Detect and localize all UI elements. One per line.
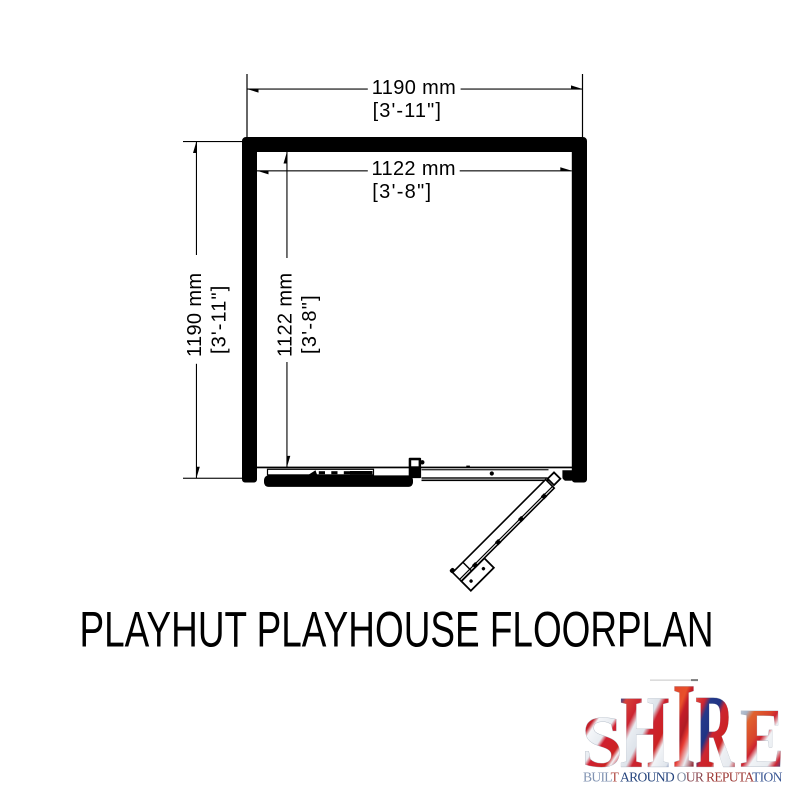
svg-text:[3'-11"]: [3'-11"] [209, 285, 231, 354]
svg-text:[3'-11"]: [3'-11"] [373, 100, 442, 122]
svg-text:1190 mm: 1190 mm [184, 273, 206, 357]
svg-text:[3'-8"]: [3'-8"] [299, 294, 321, 354]
svg-text:1122 mm: 1122 mm [275, 273, 297, 357]
svg-text:BUILT AROUND OUR REPUTATION: BUILT AROUND OUR REPUTATION [583, 769, 783, 784]
svg-text:PLAYHUT PLAYHOUSE FLOORPLAN: PLAYHUT PLAYHOUSE FLOORPLAN [80, 602, 714, 658]
svg-text:1190 mm: 1190 mm [372, 77, 456, 99]
svg-text:[3'-8"]: [3'-8"] [372, 181, 432, 203]
svg-text:1122 mm: 1122 mm [372, 158, 456, 180]
